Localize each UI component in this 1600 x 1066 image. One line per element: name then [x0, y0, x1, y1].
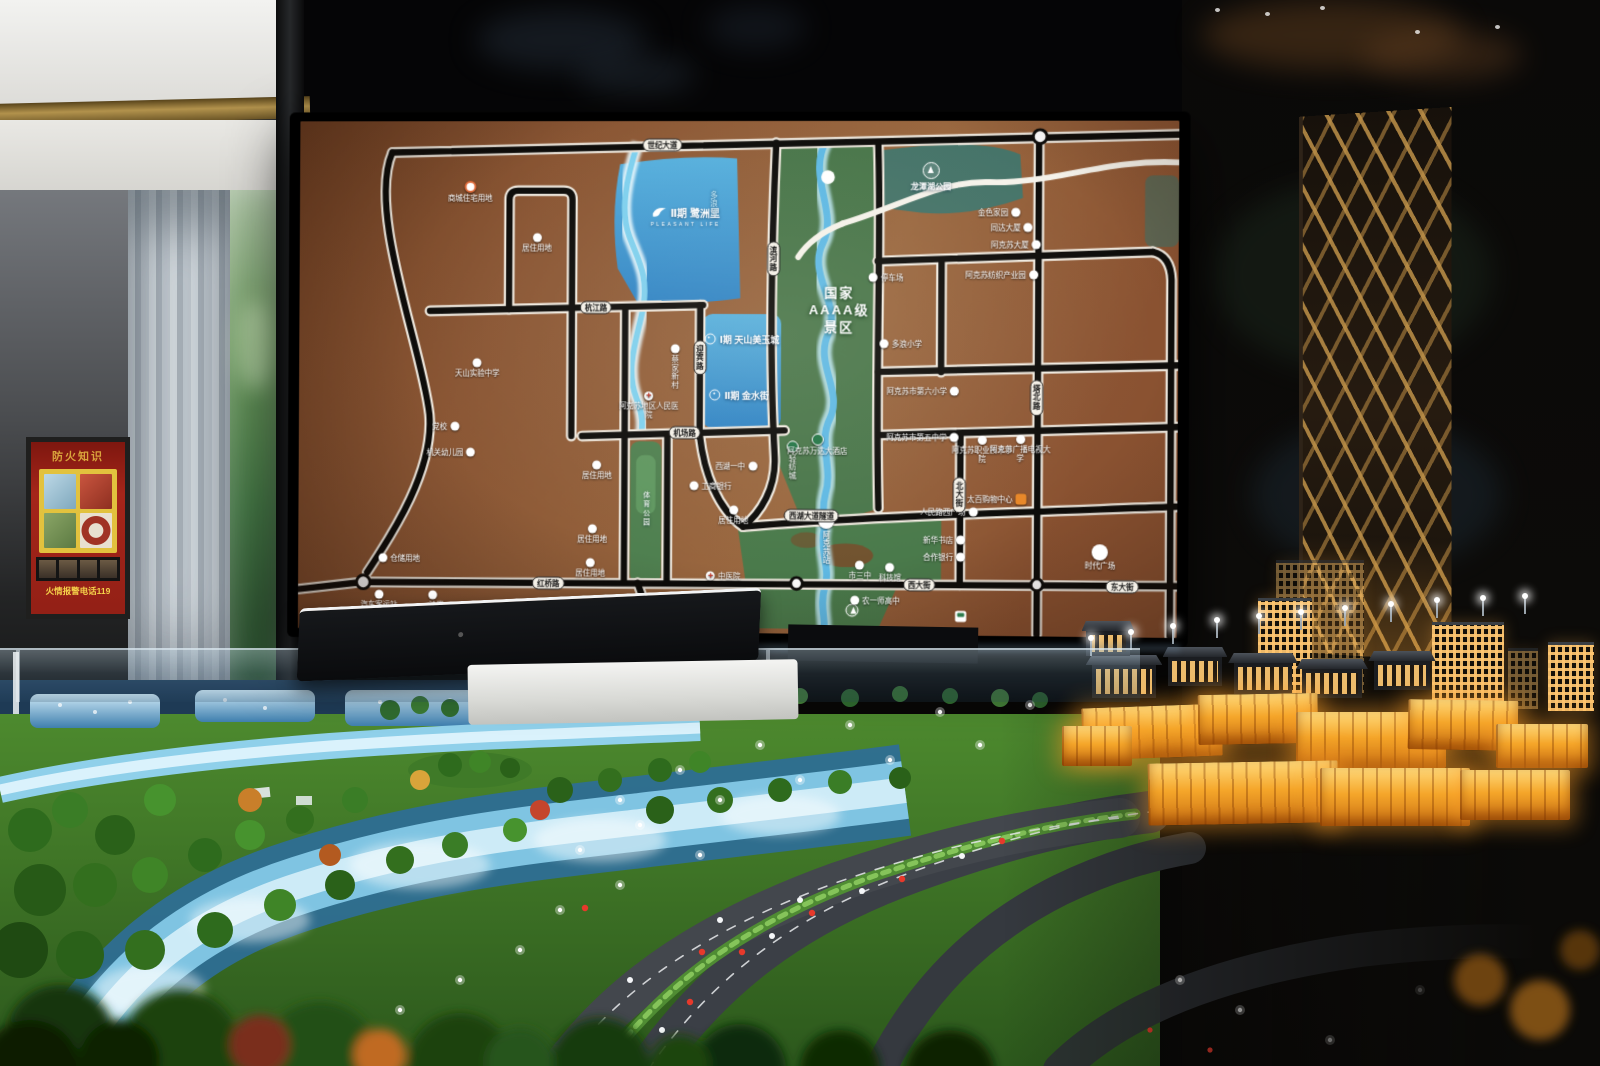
poi-dot — [1016, 494, 1027, 505]
map-poi: 居住用地 — [522, 233, 552, 252]
control-podium — [298, 592, 778, 732]
model-traditional-house — [1234, 662, 1292, 694]
road-label: 北大街 — [953, 477, 966, 513]
model-traditional-house — [1374, 660, 1430, 690]
poi-layer: 商城住宅用地居住用地天山实验中学党校机关幼儿园蔡家新村阿克苏地区人民医院仓储用地… — [300, 121, 1179, 122]
map-poi: 阿克苏广播电视大学 — [988, 434, 1053, 463]
map-poi: 中医院 — [706, 571, 740, 580]
poi-dot — [1011, 207, 1020, 216]
poi-dot — [533, 233, 542, 242]
poi-dot — [869, 273, 878, 282]
road-label: 机场路 — [668, 426, 700, 439]
poi-dot — [748, 461, 757, 470]
left-wall: 防火知识 火情报警电话119 — [0, 0, 302, 700]
map-poi: 阿克苏市第五中学 — [886, 432, 959, 442]
map-poi: 工商银行 — [690, 481, 732, 490]
parcel-label-phase1: Ⅰ期 天山美玉城 — [705, 332, 780, 345]
sports-park-label: 体育公园 — [641, 491, 651, 527]
poi-dot — [1016, 434, 1025, 443]
poi-dot — [464, 180, 476, 192]
parcel-label-phase2b: Ⅱ期 金水街 — [709, 388, 768, 401]
model-highrise-tower — [1548, 642, 1594, 711]
poster-photos — [36, 557, 120, 581]
map-poi: 新华书店 — [923, 535, 965, 544]
poi-dot — [473, 359, 482, 368]
map-poi: 合作银行 — [923, 552, 965, 561]
map-poi: 市三中 — [849, 561, 872, 580]
map-poi: 人民路西广场 — [920, 507, 978, 517]
tree-icon — [922, 162, 939, 179]
poi-dot — [968, 508, 977, 517]
poi-dot — [956, 553, 965, 562]
map-poi: 阿克苏市第六小学 — [887, 386, 960, 395]
map-poi: 机关幼儿园 — [426, 447, 475, 456]
model-golden-building — [1320, 768, 1470, 826]
model-golden-building — [1460, 770, 1570, 820]
poi-dot — [378, 553, 387, 562]
road-label: 西大街 — [903, 578, 936, 591]
park-label: 龙潭湖公园 — [911, 162, 951, 192]
developer-logo-icon — [709, 389, 720, 400]
map-poi: 农一师高中 — [850, 595, 900, 605]
map-poi: 居住用地 — [582, 460, 612, 479]
road-label: 西湖大道隧道 — [784, 509, 839, 522]
map-label-layer: Ⅱ期 鹭洲里 PLEASANT LIFE Ⅰ期 天山美玉城 Ⅱ期 金水街 国家A… — [298, 121, 1180, 638]
road-label: 东大街 — [1106, 580, 1139, 593]
poi-dot — [855, 561, 864, 570]
map-poi: 阿克苏万达大酒店 — [787, 433, 847, 455]
map-poi: 仓储用地 — [378, 553, 419, 562]
model-golden-building — [1062, 726, 1132, 766]
map-poi: 党校 — [432, 422, 459, 431]
scenic-area-label: 国家AAAA级景区 — [809, 285, 870, 336]
map-poi: 多浪小学 — [880, 339, 922, 348]
map-poi: 阿克苏地区人民医院 — [617, 391, 681, 419]
road-label: 杭江路 — [580, 301, 612, 314]
map-poi: 太百购物中心 — [967, 494, 1027, 506]
road-label: 迎宾路 — [693, 340, 706, 376]
poi-dot — [644, 391, 653, 400]
leaf-glint — [1215, 8, 1220, 12]
poster-diagram — [39, 469, 117, 553]
tree-icon-small — [845, 604, 858, 619]
poi-dot — [1024, 223, 1033, 232]
poi-dot — [729, 506, 738, 515]
map-poi: 科技馆 — [879, 563, 902, 582]
poi-dot — [588, 524, 597, 533]
poi-dot — [1032, 240, 1041, 249]
poi-dot — [592, 460, 601, 469]
poi-dot — [690, 481, 699, 490]
poster-title: 防火知识 — [52, 448, 104, 464]
poi-dot — [850, 595, 859, 604]
led-display-screen: Ⅱ期 鹭洲里 PLEASANT LIFE Ⅰ期 天山美玉城 Ⅱ期 金水街 国家A… — [287, 112, 1191, 648]
map-poi: 商城住宅用地 — [448, 180, 492, 202]
model-golden-building — [1496, 724, 1588, 768]
poi-dot — [1029, 270, 1038, 279]
poi-dot — [586, 558, 595, 567]
road-label: 红桥路 — [532, 576, 564, 589]
model-traditional-house — [1168, 656, 1222, 686]
map-poi: 同达大厦 — [990, 223, 1033, 232]
model-highrise-tower — [1432, 622, 1504, 709]
map-poi: 阿克苏纺织产业园 — [965, 270, 1038, 279]
poi-dot — [811, 433, 823, 445]
map-poi: 居住用地 — [577, 524, 607, 543]
train-station-icon — [955, 610, 966, 621]
poi-dot — [1092, 544, 1108, 560]
poi-dot — [466, 447, 475, 456]
map-poi: 时代广场 — [1085, 544, 1116, 571]
road-labels-layer: 世纪大道杭江路机场路西湖大道隧道红桥路西大街东大街迎宾路滨河路北大街塔北路多浪河 — [300, 121, 1179, 122]
poi-dot — [950, 386, 959, 395]
map-poi: 阿克苏大厦 — [991, 240, 1041, 249]
road-label: 滨河路 — [767, 241, 780, 277]
map-poi: 西湖一中 — [715, 461, 757, 470]
glass-corner-post — [13, 652, 19, 714]
poi-dot — [880, 339, 889, 348]
fire-safety-poster: 防火知识 火情报警电话119 — [26, 437, 130, 619]
road-label: 世纪大道 — [642, 138, 682, 151]
sales-center-showroom-photo: 防火知识 火情报警电话119 — [0, 0, 1600, 1066]
curtain — [128, 190, 232, 700]
road-label: 多浪河 — [708, 188, 719, 221]
map-poi: 金色家园 — [978, 207, 1021, 216]
dark-ceiling — [276, 0, 1206, 118]
podium-stand — [468, 659, 799, 725]
road-label: 塔北路 — [1030, 380, 1043, 416]
poi-dot — [885, 563, 894, 572]
map-poi: 居住用地 — [575, 558, 605, 577]
poi-dot — [706, 571, 715, 580]
developer-logo-icon — [705, 333, 716, 344]
white-ceiling — [0, 0, 302, 106]
map-poi: 天山实验中学 — [455, 358, 499, 377]
map-poi: 居住用地 — [718, 506, 748, 525]
master-plan-map: Ⅱ期 鹭洲里 PLEASANT LIFE Ⅰ期 天山美玉城 Ⅱ期 金水街 国家A… — [298, 121, 1180, 638]
model-golden-building — [1147, 760, 1338, 825]
poster-hotline: 火情报警电话119 — [46, 585, 111, 597]
model-highrise-tower — [1508, 648, 1538, 709]
poi-dot — [671, 344, 680, 353]
dove-icon — [652, 206, 667, 217]
poi-dot — [956, 536, 965, 545]
poi-dot — [977, 435, 986, 444]
poi-dot — [450, 422, 459, 431]
map-poi: 停车场 — [869, 273, 904, 282]
map-poi: 蔡家新村 — [671, 344, 680, 389]
